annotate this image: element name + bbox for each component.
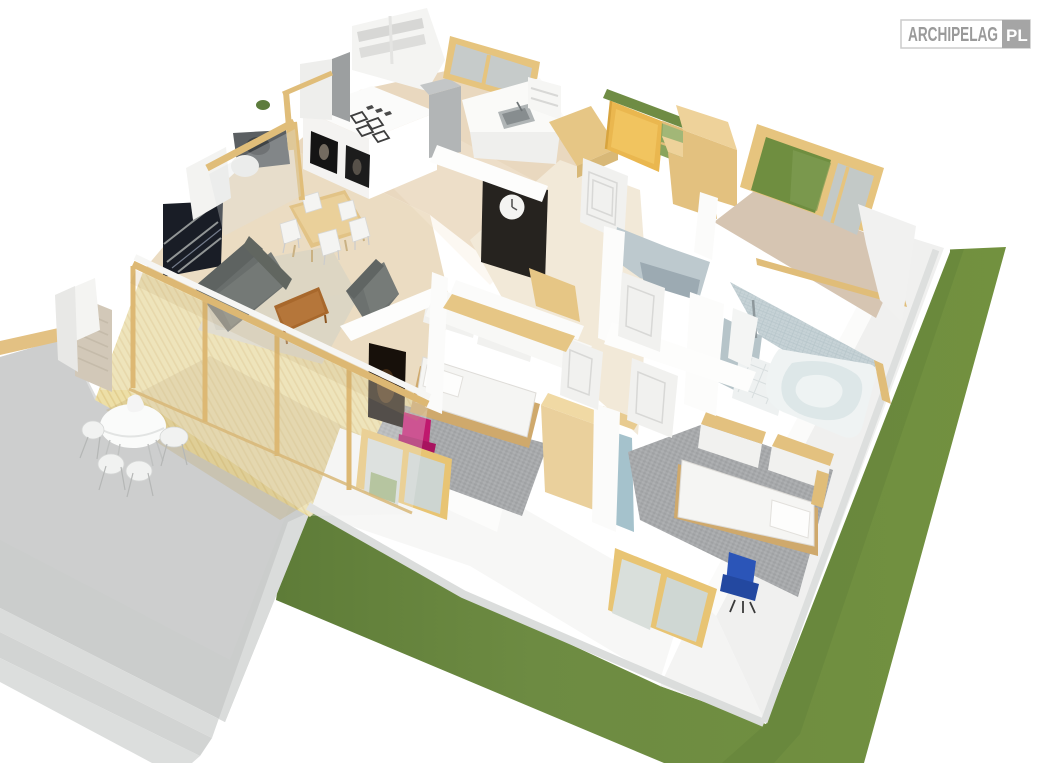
svg-text:ARCHIPELAG: ARCHIPELAG: [908, 24, 998, 46]
svg-text:PL: PL: [1006, 26, 1028, 45]
